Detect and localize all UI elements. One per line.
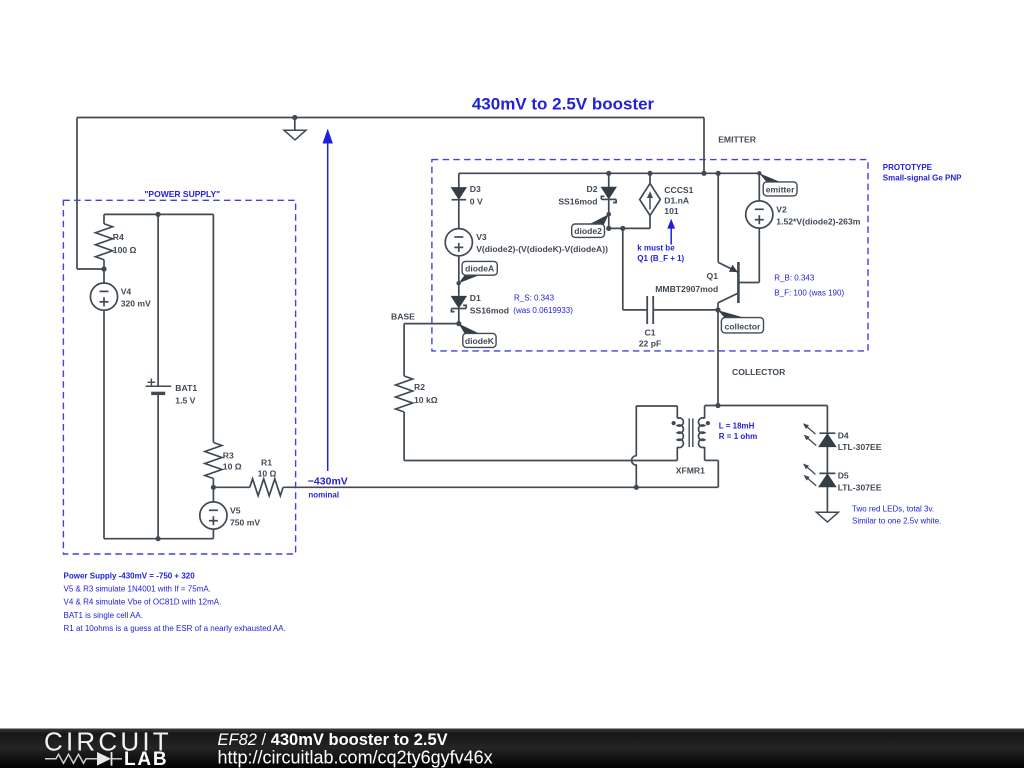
svg-text:V(diode2)-(V(diodeK)-V(diodeA): V(diode2)-(V(diodeK)-V(diodeA)) <box>476 244 608 254</box>
svg-text:320 mV: 320 mV <box>121 298 151 308</box>
svg-text:B_F: 100 (was 190): B_F: 100 (was 190) <box>774 288 844 297</box>
svg-text:D4: D4 <box>838 430 849 440</box>
svg-text:101: 101 <box>664 206 679 216</box>
svg-text:SS16mod: SS16mod <box>470 306 509 316</box>
svg-text:R2: R2 <box>414 382 425 392</box>
svg-text:C1: C1 <box>645 327 656 337</box>
svg-text:nominal: nominal <box>308 491 339 500</box>
svg-text:SS16mod: SS16mod <box>558 196 597 206</box>
svg-text:emitter: emitter <box>766 184 795 194</box>
svg-text:−430mV: −430mV <box>308 475 348 487</box>
svg-text:Q1 (B_F + 1): Q1 (B_F + 1) <box>637 254 684 263</box>
svg-text:V4: V4 <box>121 286 132 296</box>
svg-text:LTL-307EE: LTL-307EE <box>838 442 882 452</box>
svg-text:D5: D5 <box>838 471 849 481</box>
svg-text:D1: D1 <box>470 293 481 303</box>
svg-text:R1 at 10ohms is a guess at the: R1 at 10ohms is a guess at the ESR of a … <box>64 624 286 633</box>
svg-text:750 mV: 750 mV <box>230 517 260 527</box>
svg-text:Small-signal Ge PNP: Small-signal Ge PNP <box>883 173 962 182</box>
svg-text:D2: D2 <box>587 184 598 194</box>
svg-text:MMBT2907mod: MMBT2907mod <box>655 284 718 294</box>
svg-text:diodeK: diodeK <box>465 336 495 346</box>
svg-text:R = 1 ohm: R = 1 ohm <box>719 432 757 441</box>
svg-text:D1.nA: D1.nA <box>664 195 689 205</box>
svg-text:430mV to 2.5V booster: 430mV to 2.5V booster <box>472 95 655 114</box>
svg-text:Power Supply -430mV = -750 + 3: Power Supply -430mV = -750 + 320 <box>64 571 196 580</box>
svg-text:10 Ω: 10 Ω <box>223 462 242 472</box>
svg-text:k must be: k must be <box>637 244 675 253</box>
svg-text:R3: R3 <box>223 451 234 461</box>
svg-text:V3: V3 <box>476 232 487 242</box>
svg-text:V5 & R3 simulate 1N4001 with I: V5 & R3 simulate 1N4001 with If = 75mA. <box>64 585 211 594</box>
svg-text:LAB: LAB <box>124 749 168 768</box>
svg-text:V2: V2 <box>776 204 787 214</box>
svg-text:R_B: 0.343: R_B: 0.343 <box>774 273 815 282</box>
svg-text:0 V: 0 V <box>470 196 483 206</box>
svg-text:L = 18mH: L = 18mH <box>719 421 755 430</box>
svg-text:V4 & R4 simulate Vbe of OC81D: V4 & R4 simulate Vbe of OC81D with 12mA. <box>64 598 222 607</box>
svg-text:EMITTER: EMITTER <box>718 135 757 145</box>
svg-text:http://circuitlab.com/cq2ty6gy: http://circuitlab.com/cq2ty6gyfv46x <box>218 748 493 768</box>
svg-text:LTL-307EE: LTL-307EE <box>838 483 882 493</box>
svg-text:BAT1: BAT1 <box>175 383 197 393</box>
svg-text:V5: V5 <box>230 505 241 515</box>
svg-text:BASE: BASE <box>391 312 415 322</box>
svg-text:BAT1 is single cell AA.: BAT1 is single cell AA. <box>64 611 143 620</box>
svg-text:Q1: Q1 <box>707 271 719 281</box>
svg-text:R_S: 0.343: R_S: 0.343 <box>514 294 555 303</box>
svg-text:PROTOTYPE: PROTOTYPE <box>883 163 933 172</box>
svg-text:COLLECTOR: COLLECTOR <box>732 367 786 377</box>
svg-text:10 kΩ: 10 kΩ <box>414 395 438 405</box>
svg-text:D3: D3 <box>470 184 481 194</box>
svg-text:diode2: diode2 <box>574 226 602 236</box>
svg-text:10 Ω: 10 Ω <box>258 469 277 479</box>
svg-text:(was 0.0619933): (was 0.0619933) <box>513 306 573 315</box>
svg-text:CCCS1: CCCS1 <box>664 185 693 195</box>
svg-text:1.52*V(diode2)-263m: 1.52*V(diode2)-263m <box>776 216 860 226</box>
svg-text:R4: R4 <box>113 232 124 242</box>
svg-text:22 pF: 22 pF <box>639 338 661 348</box>
svg-text:EF82 / 430mV booster to 2.5V: EF82 / 430mV booster to 2.5V <box>218 731 448 749</box>
svg-text:"POWER SUPPLY": "POWER SUPPLY" <box>144 189 220 199</box>
svg-text:Similar to one 2.5v white.: Similar to one 2.5v white. <box>852 517 941 526</box>
svg-text:100 Ω: 100 Ω <box>113 245 137 255</box>
svg-text:diodeA: diodeA <box>465 264 494 274</box>
svg-text:collector: collector <box>725 321 761 331</box>
svg-text:XFMR1: XFMR1 <box>676 465 705 475</box>
svg-text:1.5 V: 1.5 V <box>175 396 195 406</box>
svg-text:Two red LEDs, total 3v.: Two red LEDs, total 3v. <box>852 505 934 514</box>
svg-text:R1: R1 <box>261 458 272 468</box>
